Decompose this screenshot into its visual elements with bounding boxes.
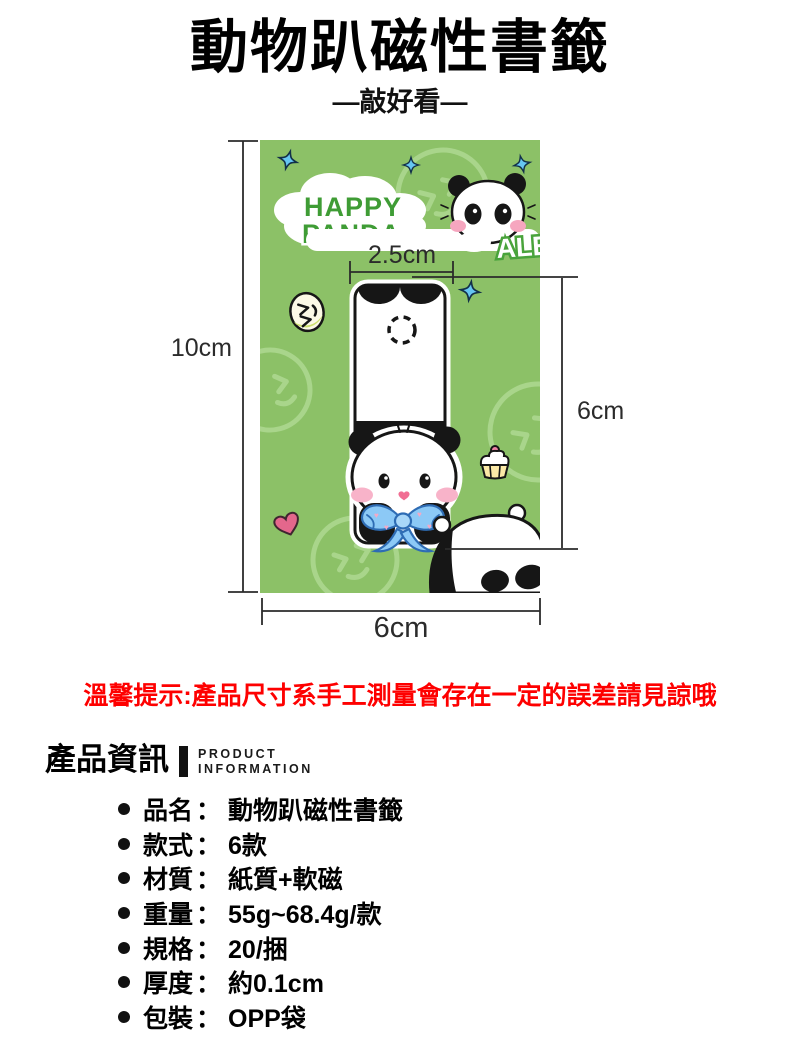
item-value: 20/捆 [228, 930, 288, 966]
corner-bubble-text: ALE [495, 230, 540, 264]
bullet-icon [118, 942, 130, 954]
measurement-notice: 溫馨提示:產品尺寸系手工測量會存在一定的誤差請見諒哦 [0, 676, 800, 712]
product-info-subheading: PRODUCT INFORMATION [198, 742, 313, 777]
page-subtitle: —敲好看— [0, 80, 800, 119]
dim-label-card-width: 6cm [340, 612, 462, 645]
item-colon: ： [196, 826, 221, 862]
dim-label-card-height: 10cm [138, 334, 232, 363]
svg-text:♥: ♥ [417, 510, 422, 519]
item-colon: ： [196, 964, 221, 1000]
bullet-icon [118, 803, 130, 815]
list-item: 規格 ： 20/捆 [118, 930, 403, 965]
product-info-heading: 產品資訊 [45, 742, 169, 778]
item-value: OPP袋 [228, 999, 306, 1035]
list-item: 包裝 ： OPP袋 [118, 1000, 403, 1035]
item-label: 規格 [143, 930, 193, 966]
item-colon: ： [196, 791, 221, 827]
item-colon: ： [196, 895, 221, 931]
page-title: 動物趴磁性書籤 [0, 0, 800, 84]
item-value: 6款 [228, 826, 267, 862]
product-info-list: 品名 ： 動物趴磁性書籤 款式 ： 6款 材質 ： 紙質+軟磁 重量 ： 55g… [118, 792, 403, 1034]
item-label: 材質 [143, 860, 193, 896]
dim-line-left [228, 141, 258, 592]
item-colon: ： [196, 930, 221, 966]
item-label: 重量 [143, 895, 193, 931]
item-value: 動物趴磁性書籤 [228, 791, 403, 827]
heading-divider-bar [179, 746, 188, 777]
svg-text:♥: ♥ [374, 511, 379, 520]
item-value: 紙質+軟磁 [228, 860, 343, 896]
list-item: 款式 ： 6款 [118, 827, 403, 862]
happy-panda-text-line1: HAPPY [304, 192, 402, 222]
list-item: 厚度 ： 約0.1cm [118, 965, 403, 1000]
bullet-icon [118, 907, 130, 919]
product-info-header: 產品資訊 PRODUCT INFORMATION [45, 742, 313, 778]
item-value: 55g~68.4g/款 [228, 895, 382, 931]
bullet-icon [118, 838, 130, 850]
subheading-line2: INFORMATION [198, 762, 313, 777]
bullet-icon [118, 976, 130, 988]
svg-text:♥: ♥ [384, 523, 389, 532]
item-value: 約0.1cm [228, 964, 324, 1000]
item-colon: ： [196, 860, 221, 896]
product-card-illustration: HAPPY PANDA ALE [260, 140, 540, 593]
item-label: 厚度 [143, 964, 193, 1000]
dim-label-bookmark-width: 2.5cm [342, 241, 462, 270]
bookmark-illustration: ♥♥ ♥♥ [348, 270, 461, 551]
lying-panda-icon [430, 505, 540, 593]
bullet-icon [118, 1011, 130, 1023]
item-colon: ： [196, 999, 221, 1035]
item-label: 款式 [143, 826, 193, 862]
list-item: 材質 ： 紙質+軟磁 [118, 861, 403, 896]
list-item: 品名 ： 動物趴磁性書籤 [118, 792, 403, 827]
dim-label-bookmark-height: 6cm [577, 397, 657, 426]
list-item: 重量 ： 55g~68.4g/款 [118, 896, 403, 931]
bullet-icon [118, 872, 130, 884]
svg-text:♥: ♥ [427, 522, 432, 531]
item-label: 品名 [143, 791, 193, 827]
item-label: 包裝 [143, 999, 193, 1035]
subheading-line1: PRODUCT [198, 747, 313, 762]
